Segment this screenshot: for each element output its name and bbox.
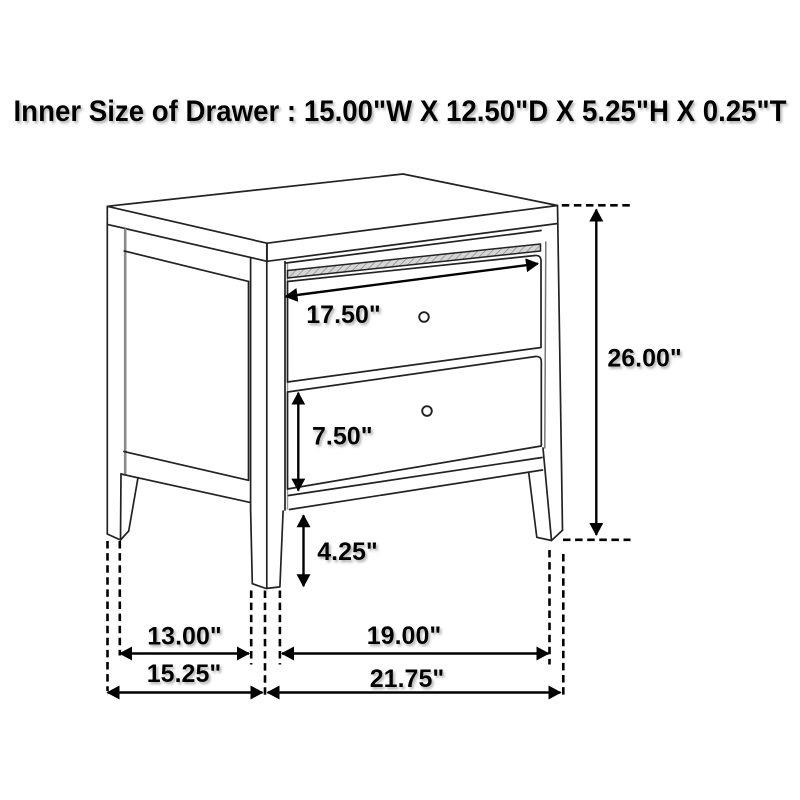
svg-text:7.50": 7.50" (312, 422, 373, 450)
svg-text:Inner Size of Drawer : 15.00"W: Inner Size of Drawer : 15.00"W X 12.50"D… (14, 95, 787, 128)
svg-text:13.00": 13.00" (147, 623, 221, 651)
svg-text:21.75": 21.75" (370, 665, 444, 693)
svg-text:17.50": 17.50" (306, 301, 380, 329)
svg-text:4.25": 4.25" (317, 538, 378, 566)
svg-text:26.00": 26.00" (607, 345, 681, 373)
svg-text:15.25": 15.25" (147, 660, 221, 688)
svg-text:19.00": 19.00" (367, 622, 441, 650)
